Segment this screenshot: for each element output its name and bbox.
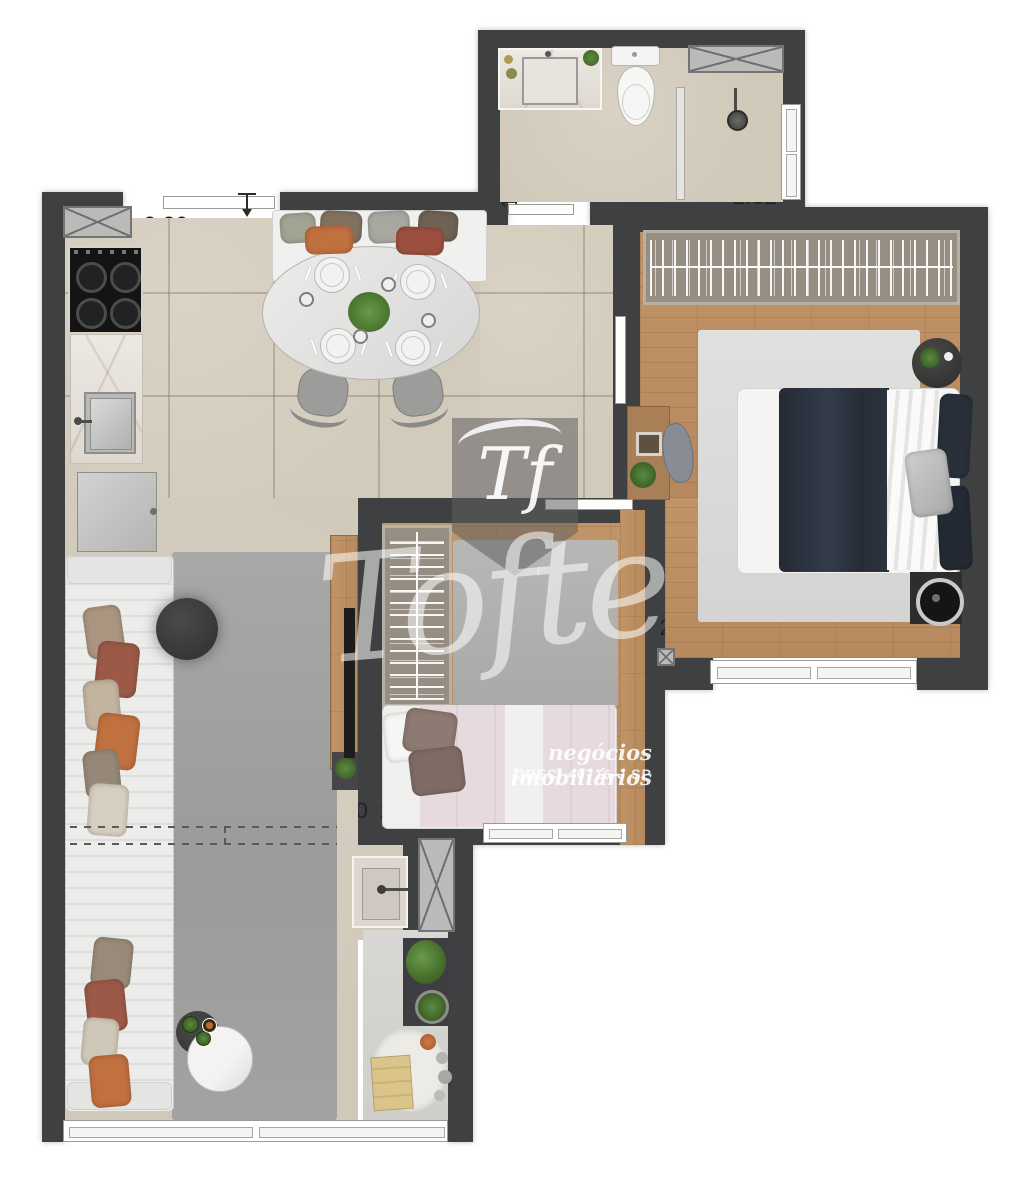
speaker-icon <box>916 578 964 626</box>
sofa-pillow <box>88 1053 132 1108</box>
bedroom2-window <box>483 823 627 843</box>
fridge-handle <box>150 508 157 515</box>
projection-dashed-tick <box>224 827 226 843</box>
vanity-plant <box>583 50 599 66</box>
soap-dish <box>506 68 517 79</box>
sofa-armrest <box>67 556 172 584</box>
faucet-icon <box>545 51 551 57</box>
entry-arrow-icon <box>242 209 252 217</box>
projection-dashed-line <box>70 843 337 845</box>
kitchen-faucet-base <box>74 417 82 425</box>
watermark-creci: CRECI 40716-J SP <box>500 766 652 782</box>
bathroom-door-leaf <box>508 204 574 215</box>
refrigerator <box>77 472 157 552</box>
shaft-box-bathroom <box>688 45 784 73</box>
bedroom-door-leaf <box>615 316 626 404</box>
table-centerpiece-plant <box>348 292 390 332</box>
balcony-bench <box>370 1055 414 1112</box>
balcony-deco-orange <box>420 1034 436 1050</box>
bench-cushion <box>396 226 445 256</box>
wardrobe-hangers <box>650 240 953 296</box>
toilet-button <box>632 52 637 57</box>
soap-dish <box>504 55 513 64</box>
shower-partition <box>676 87 685 200</box>
laundry-basin <box>362 868 400 920</box>
burner-icon <box>76 262 107 293</box>
balcony-pebble <box>438 1070 452 1084</box>
stove-knobs <box>74 250 138 254</box>
table-cup <box>421 313 436 328</box>
pouf <box>156 598 218 660</box>
place-setting <box>395 330 431 366</box>
bedroom-window <box>710 660 917 684</box>
table-cup <box>353 329 368 344</box>
burner-icon <box>110 262 141 293</box>
burner-icon <box>110 298 141 329</box>
balcony-pebble <box>436 1052 448 1064</box>
kitchen-sink-basin <box>90 398 132 450</box>
balcony-pebble <box>434 1090 445 1101</box>
watermark-tagline: negócios imobiliários <box>430 740 652 790</box>
speaker-center <box>932 594 940 602</box>
toilet-seat-line <box>622 84 650 120</box>
entry-door-leaf <box>163 196 275 209</box>
place-setting <box>320 328 356 364</box>
shaft-box-service <box>418 838 455 932</box>
bed-pillow-silver <box>904 447 955 518</box>
shower-head-icon <box>727 110 748 131</box>
burner-icon <box>76 298 107 329</box>
coffee-plant <box>182 1016 199 1033</box>
bench-cushion <box>305 225 354 255</box>
side-table-cup <box>944 352 953 361</box>
balcony-window-band <box>63 1120 448 1142</box>
coffee-plant <box>196 1031 211 1046</box>
coffee-cup <box>202 1018 217 1033</box>
desk-plant <box>630 462 656 488</box>
table-cup <box>381 277 396 292</box>
balcony-plant-bush <box>406 940 446 984</box>
sofa-pillow <box>86 783 130 838</box>
watermark-brand: Tofte <box>311 490 744 698</box>
side-table-plant <box>920 348 940 368</box>
shelf-plant <box>335 758 356 779</box>
place-setting <box>314 257 350 293</box>
place-setting <box>400 264 436 300</box>
desk-picture-frame <box>636 432 662 456</box>
balcony-plant-pot <box>415 990 449 1024</box>
table-cup <box>299 292 314 307</box>
shaft-box-kitchen <box>63 206 132 238</box>
floor-plan: 2.80 1.34 2.32 2.25 3.60 2.60 2.50 2.50 … <box>0 0 1024 1197</box>
laundry-faucet-head <box>377 885 386 894</box>
bed-blanket-navy <box>779 388 889 572</box>
wardrobe-rail <box>650 266 953 268</box>
bathroom-sink <box>522 57 578 105</box>
projection-dashed-line <box>70 826 337 828</box>
bathroom-window <box>781 104 801 200</box>
